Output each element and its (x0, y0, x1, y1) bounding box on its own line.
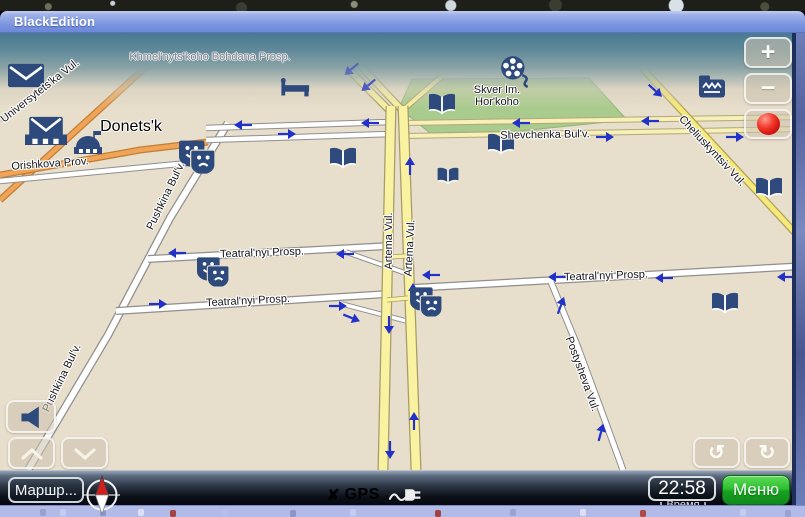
minus-icon: − (761, 76, 776, 101)
desktop-background-strip-top (0, 0, 805, 11)
map-viewport[interactable]: Donets'k Skver Im. Hor'koho Khmel'nyts'k… (0, 33, 792, 470)
rotate-ccw-button[interactable]: ↺ (693, 437, 740, 468)
rotate-ccw-icon: ↺ (708, 443, 725, 463)
chevron-up-icon (20, 446, 44, 461)
record-position-button[interactable] (744, 109, 792, 139)
gps-disconnected-x-icon: ✘ (327, 486, 340, 504)
gps-plug-icon (389, 485, 427, 505)
clock-display[interactable]: 22:58 (648, 476, 716, 501)
zoom-out-button[interactable]: − (744, 73, 792, 104)
compass-indicator[interactable] (83, 473, 121, 517)
route-button[interactable]: Маршр... (8, 477, 84, 503)
rotate-cw-icon: ↻ (759, 443, 776, 463)
speaker-icon (18, 404, 44, 430)
compass-north-needle (96, 476, 109, 495)
record-dot-icon (757, 113, 780, 135)
taskbar-icons (40, 509, 46, 516)
gps-label: GPS (345, 486, 380, 504)
horizon-sky-gradient (0, 33, 792, 109)
window-titlebar[interactable]: BlackEdition (0, 11, 805, 33)
chevron-down-icon (73, 446, 97, 461)
tilt-down-button[interactable] (61, 437, 108, 469)
navigation-app-window: BlackEdition (0, 0, 805, 517)
rotate-cw-button[interactable]: ↻ (744, 437, 790, 468)
map-surface[interactable]: Donets'k Skver Im. Hor'koho Khmel'nyts'k… (0, 33, 792, 470)
bottom-status-bar: Маршр... ✘ GPS 22:58 Время (0, 470, 792, 505)
compass-south-needle (96, 495, 109, 514)
zoom-in-button[interactable]: + (744, 37, 792, 68)
menu-button[interactable]: Меню (722, 475, 790, 505)
window-title: BlackEdition (14, 14, 95, 29)
gps-status-indicator[interactable]: ✘ GPS (327, 485, 427, 505)
plus-icon: + (761, 40, 776, 65)
desktop-background-strip-right (796, 33, 805, 505)
mute-sound-button[interactable] (6, 400, 56, 433)
tilt-up-button[interactable] (8, 437, 55, 469)
